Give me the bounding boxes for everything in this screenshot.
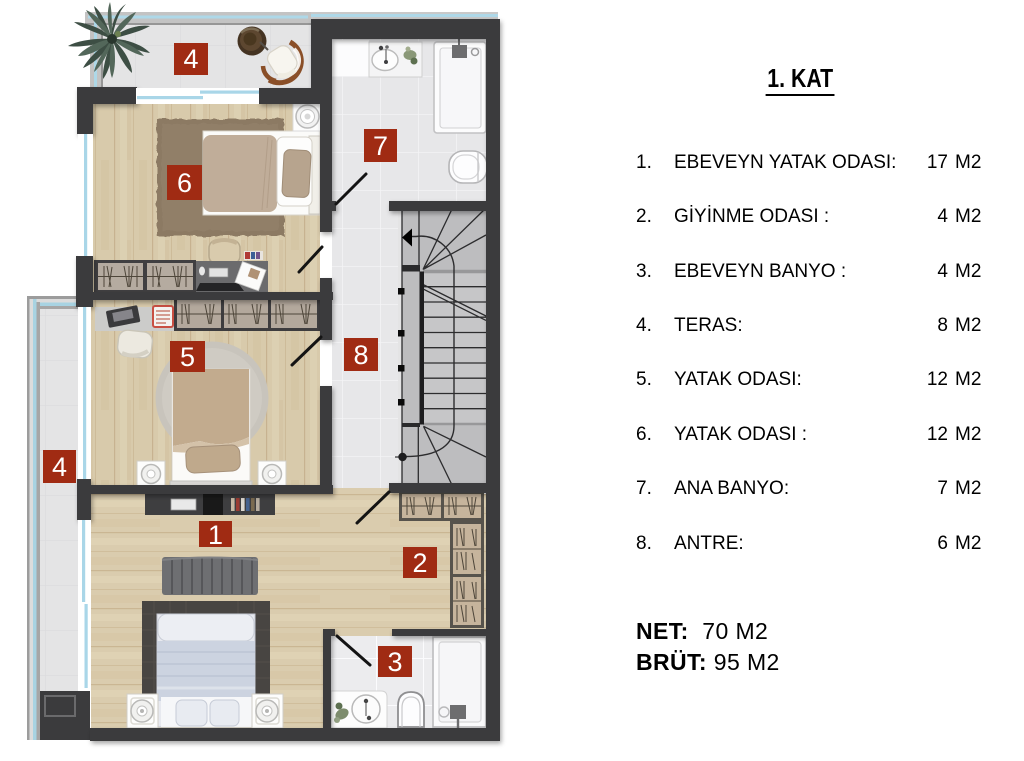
svg-text:2: 2 (412, 548, 427, 578)
svg-text:5: 5 (180, 342, 195, 372)
svg-text:3: 3 (387, 647, 402, 677)
svg-text:1: 1 (208, 520, 223, 550)
svg-text:7: 7 (373, 131, 388, 161)
svg-text:6: 6 (177, 168, 192, 198)
svg-text:4: 4 (52, 452, 67, 482)
svg-text:4: 4 (183, 44, 198, 74)
svg-text:8: 8 (353, 340, 368, 370)
